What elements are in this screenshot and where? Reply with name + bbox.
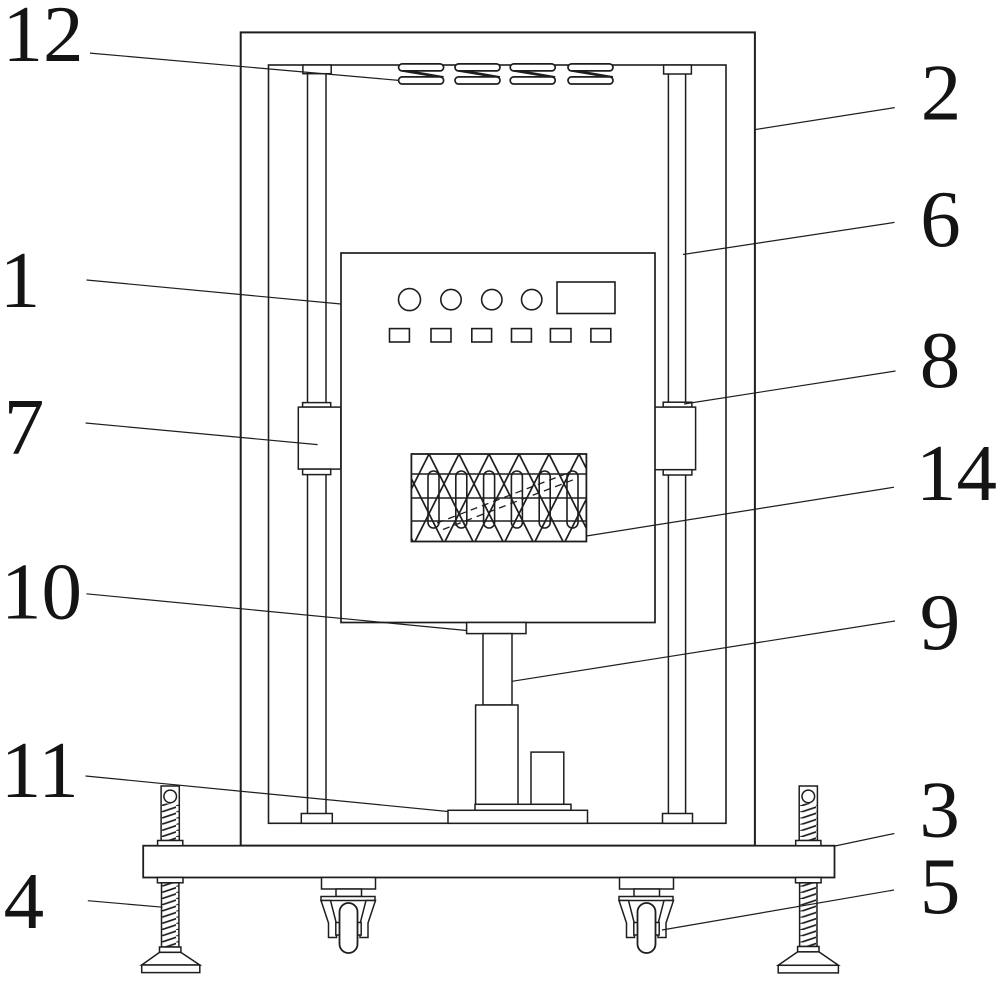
svg-text:4: 4 xyxy=(4,856,45,946)
svg-text:14: 14 xyxy=(916,428,997,518)
svg-text:1: 1 xyxy=(0,235,40,325)
svg-text:5: 5 xyxy=(920,841,961,931)
svg-text:7: 7 xyxy=(4,382,45,472)
svg-text:9: 9 xyxy=(920,577,961,667)
svg-text:12: 12 xyxy=(3,0,84,79)
svg-text:11: 11 xyxy=(1,725,79,815)
svg-text:2: 2 xyxy=(921,48,962,138)
svg-text:8: 8 xyxy=(920,315,961,405)
svg-text:10: 10 xyxy=(1,547,82,637)
svg-text:6: 6 xyxy=(920,174,961,264)
